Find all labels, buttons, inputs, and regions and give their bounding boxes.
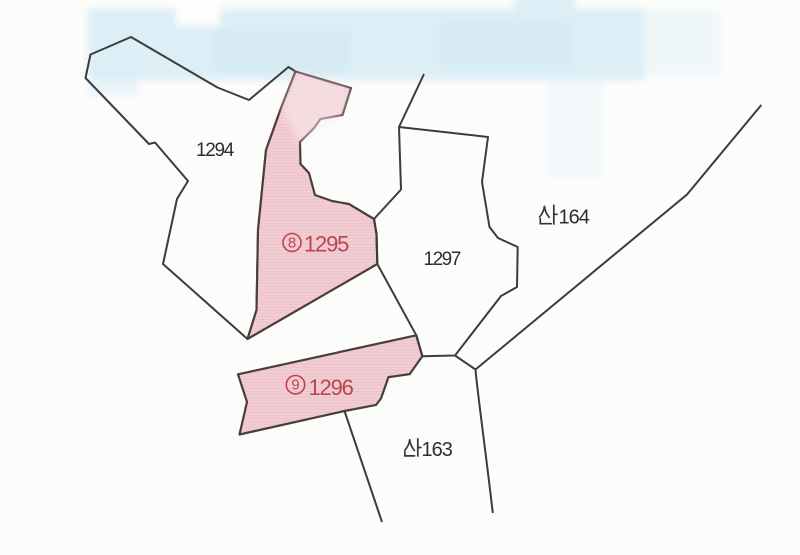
svg-text:164: 164 (559, 207, 590, 229)
svg-text:1296: 1296 (309, 375, 354, 400)
svg-text:8: 8 (288, 235, 296, 252)
svg-text:163: 163 (422, 439, 453, 461)
svg-text:1297: 1297 (424, 249, 461, 270)
svg-text:1294: 1294 (196, 140, 235, 161)
svg-text:9: 9 (291, 377, 299, 394)
svg-text:1295: 1295 (304, 232, 349, 257)
